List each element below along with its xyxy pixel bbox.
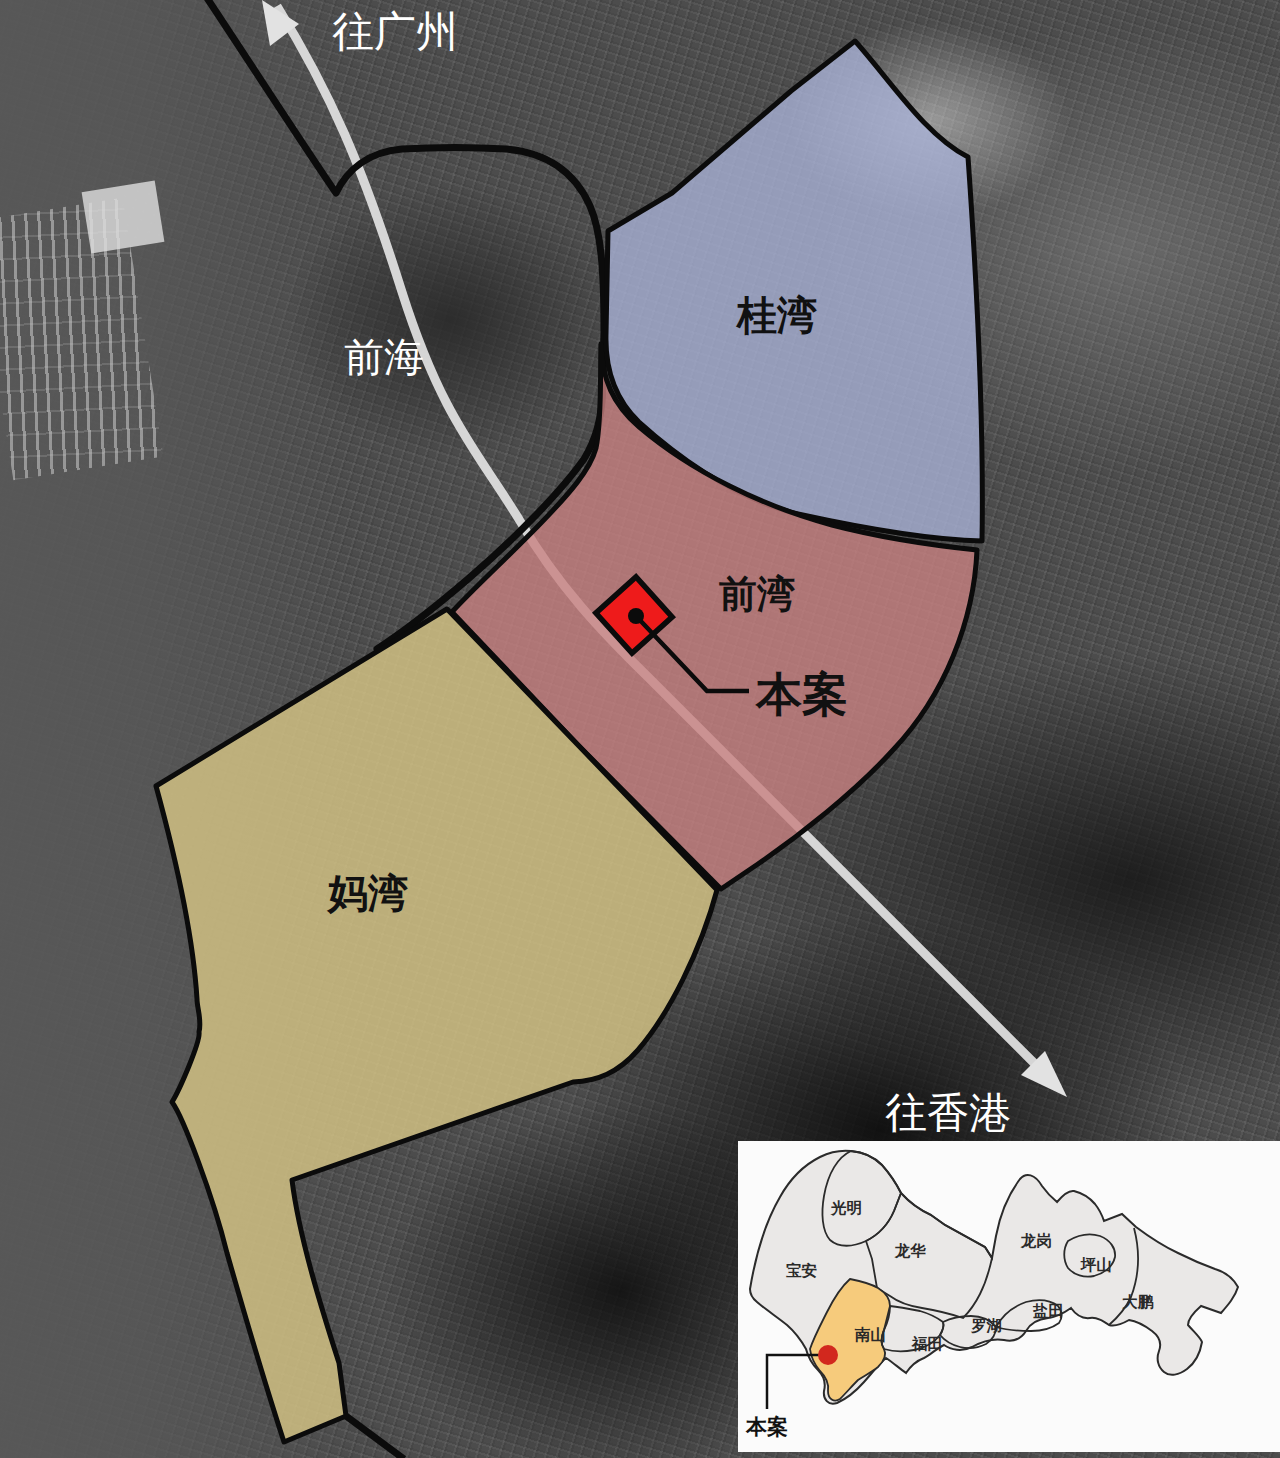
district-label-guangming: 光明	[830, 1199, 862, 1216]
district-label-pingshan: 坪山	[1080, 1256, 1112, 1273]
district-label-longgang: 龙岗	[1020, 1232, 1052, 1249]
qianhai-location-map: 往广州 前海 桂湾 前湾 本案 妈湾 往香港 光明 宝安 龙华 龙岗 坪山 盐田…	[0, 0, 1280, 1458]
site-label: 本案	[755, 668, 848, 720]
district-label-luohu: 罗湖	[971, 1317, 1002, 1334]
inset-shenzhen-map: 光明 宝安 龙华 龙岗 坪山 盐田 罗湖 福田 南山 大鹏 本案	[738, 1141, 1280, 1452]
site-leader-dot	[628, 608, 644, 624]
district-label-longhua: 龙华	[894, 1242, 927, 1259]
district-label-baoan: 宝安	[786, 1262, 818, 1279]
direction-label-hongkong: 往香港	[885, 1089, 1011, 1136]
inset-site-label: 本案	[745, 1415, 788, 1438]
district-label-dapeng: 大鹏	[1122, 1293, 1154, 1310]
zone-label-guiwan: 桂湾	[735, 293, 817, 337]
inset-svg: 光明 宝安 龙华 龙岗 坪山 盐田 罗湖 福田 南山 大鹏 本案	[738, 1141, 1280, 1452]
inset-site-dot	[818, 1345, 838, 1365]
sea-label: 前海	[344, 335, 424, 379]
direction-label-guangzhou: 往广州	[332, 8, 458, 55]
zone-label-qianwan: 前湾	[719, 573, 795, 615]
district-label-futian: 福田	[911, 1335, 943, 1352]
zone-label-mawan: 妈湾	[326, 871, 408, 915]
district-label-yantian: 盐田	[1032, 1302, 1064, 1319]
district-label-nanshan: 南山	[854, 1326, 886, 1343]
boundary-south-segment	[346, 1416, 404, 1458]
